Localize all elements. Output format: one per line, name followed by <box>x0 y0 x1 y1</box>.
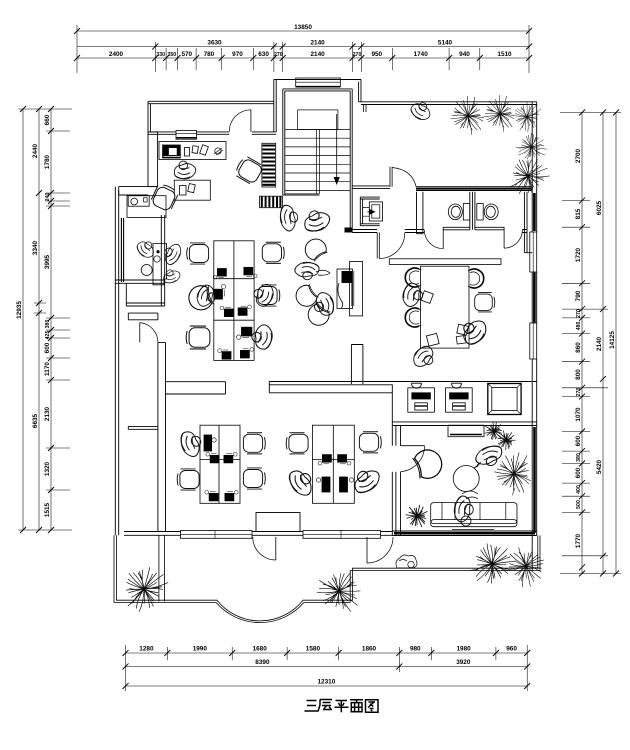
svg-text:480: 480 <box>576 322 582 331</box>
svg-text:350: 350 <box>167 52 176 58</box>
svg-text:1770: 1770 <box>575 533 582 548</box>
svg-text:815: 815 <box>575 208 582 219</box>
svg-text:1070: 1070 <box>575 407 582 422</box>
svg-text:2140: 2140 <box>596 336 603 351</box>
svg-text:5140: 5140 <box>438 40 453 47</box>
svg-text:2440: 2440 <box>32 143 39 158</box>
svg-text:980: 980 <box>410 646 421 653</box>
svg-text:12310: 12310 <box>318 679 336 686</box>
svg-text:1720: 1720 <box>575 247 582 262</box>
svg-text:1510: 1510 <box>497 51 512 58</box>
svg-text:270: 270 <box>274 52 283 58</box>
svg-text:12935: 12935 <box>16 301 23 319</box>
svg-text:3920: 3920 <box>456 659 471 666</box>
svg-text:790: 790 <box>575 290 582 301</box>
svg-text:1980: 1980 <box>456 646 471 653</box>
svg-text:500: 500 <box>576 500 582 509</box>
svg-text:800: 800 <box>575 369 582 380</box>
svg-text:2400: 2400 <box>109 51 124 58</box>
svg-text:1515: 1515 <box>44 502 51 517</box>
svg-text:1280: 1280 <box>139 646 154 653</box>
svg-text:860: 860 <box>575 342 582 353</box>
svg-text:780: 780 <box>204 51 215 58</box>
svg-text:2140: 2140 <box>310 51 325 58</box>
svg-text:6635: 6635 <box>32 413 39 428</box>
svg-text:940: 940 <box>459 51 470 58</box>
svg-text:570: 570 <box>181 51 192 58</box>
svg-text:2130: 2130 <box>44 406 51 421</box>
svg-text:1170: 1170 <box>44 362 51 376</box>
svg-text:1580: 1580 <box>306 646 321 653</box>
svg-text:380: 380 <box>576 453 582 462</box>
svg-text:3995: 3995 <box>44 254 51 269</box>
svg-text:240: 240 <box>45 193 51 202</box>
svg-text:1740: 1740 <box>414 51 429 58</box>
svg-text:3340: 3340 <box>32 240 39 255</box>
svg-text:5420: 5420 <box>596 459 603 474</box>
svg-text:2700: 2700 <box>575 148 582 163</box>
svg-text:13850: 13850 <box>294 24 312 31</box>
svg-text:1680: 1680 <box>253 646 268 653</box>
svg-text:600: 600 <box>575 467 582 478</box>
svg-text:6025: 6025 <box>596 200 603 215</box>
svg-text:950: 950 <box>371 51 382 58</box>
svg-text:970: 970 <box>232 51 243 58</box>
svg-text:630: 630 <box>258 51 269 58</box>
svg-text:600: 600 <box>44 342 51 353</box>
svg-text:14125: 14125 <box>609 331 616 349</box>
svg-text:960: 960 <box>506 646 517 653</box>
svg-text:270: 270 <box>576 388 582 397</box>
svg-text:3630: 3630 <box>207 40 222 47</box>
svg-text:1990: 1990 <box>193 646 208 653</box>
svg-text:330: 330 <box>156 52 165 58</box>
svg-text:1860: 1860 <box>362 646 377 653</box>
svg-text:1780: 1780 <box>44 154 51 169</box>
svg-text:380: 380 <box>45 320 51 329</box>
svg-text:660: 660 <box>44 114 51 125</box>
svg-text:270: 270 <box>353 52 362 58</box>
svg-text:400: 400 <box>576 485 582 494</box>
svg-text:270: 270 <box>576 309 582 318</box>
svg-text:425: 425 <box>45 331 51 340</box>
svg-text:1320: 1320 <box>44 461 51 476</box>
svg-text:8390: 8390 <box>255 659 270 666</box>
svg-text:2140: 2140 <box>310 40 325 47</box>
svg-text:600: 600 <box>575 435 582 446</box>
